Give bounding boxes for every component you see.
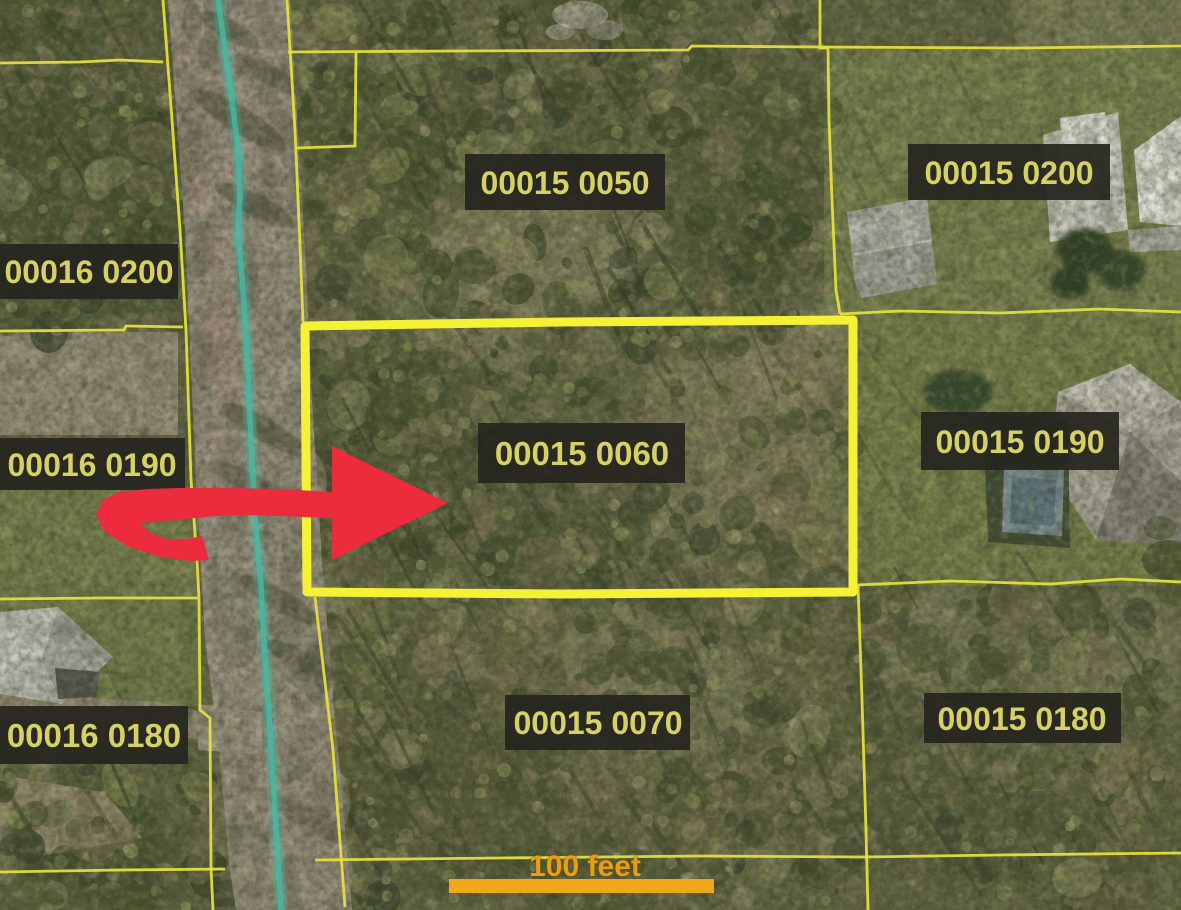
- svg-text:00015 0200: 00015 0200: [924, 155, 1093, 191]
- svg-text:00015 0190: 00015 0190: [935, 424, 1104, 460]
- svg-text:00016 0180: 00016 0180: [7, 717, 181, 754]
- svg-text:00015 0180: 00015 0180: [937, 701, 1106, 737]
- svg-text:00015 0060: 00015 0060: [495, 435, 669, 472]
- svg-text:00015 0050: 00015 0050: [480, 165, 649, 201]
- svg-text:00015 0070: 00015 0070: [513, 705, 682, 741]
- svg-text:00016 0200: 00016 0200: [4, 254, 173, 290]
- svg-text:100 feet: 100 feet: [529, 850, 641, 883]
- svg-text:00016 0190: 00016 0190: [7, 447, 176, 483]
